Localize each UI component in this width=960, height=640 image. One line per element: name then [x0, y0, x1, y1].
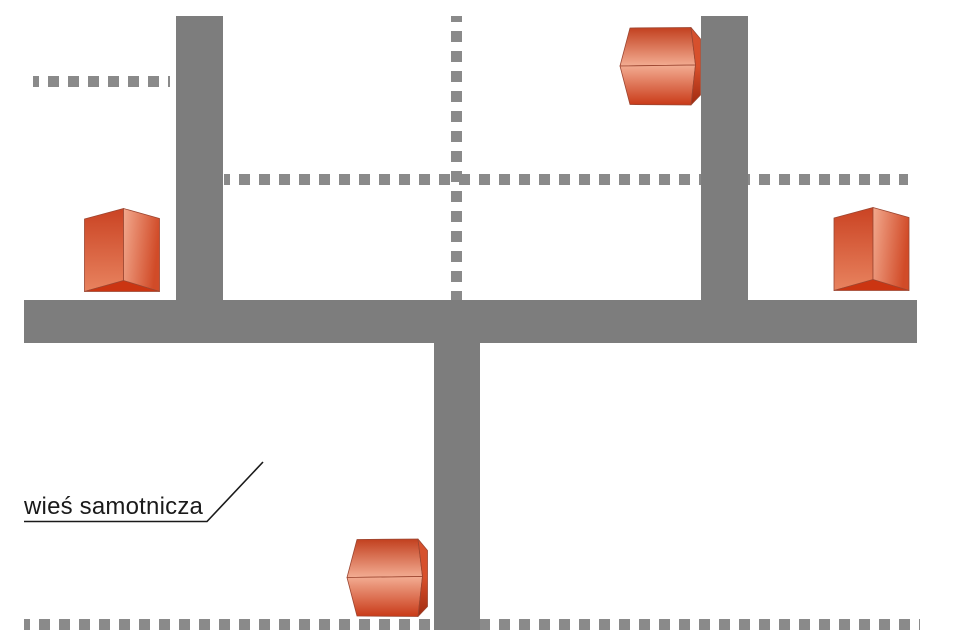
- diagram-canvas: [0, 0, 960, 640]
- house-left-icon: [85, 209, 160, 292]
- settlement-label: wieś samotnicza: [24, 494, 203, 520]
- settlement-diagram: wieś samotnicza: [0, 0, 960, 640]
- house-top-icon: [620, 28, 701, 106]
- road-vertical-right: [701, 16, 748, 300]
- house-bottom-icon: [347, 539, 428, 617]
- road-vertical-bottom: [434, 343, 480, 630]
- house-right-icon: [834, 208, 909, 291]
- roads: [24, 16, 917, 630]
- road-vertical-left: [176, 16, 223, 300]
- road-horizontal-main: [24, 300, 917, 343]
